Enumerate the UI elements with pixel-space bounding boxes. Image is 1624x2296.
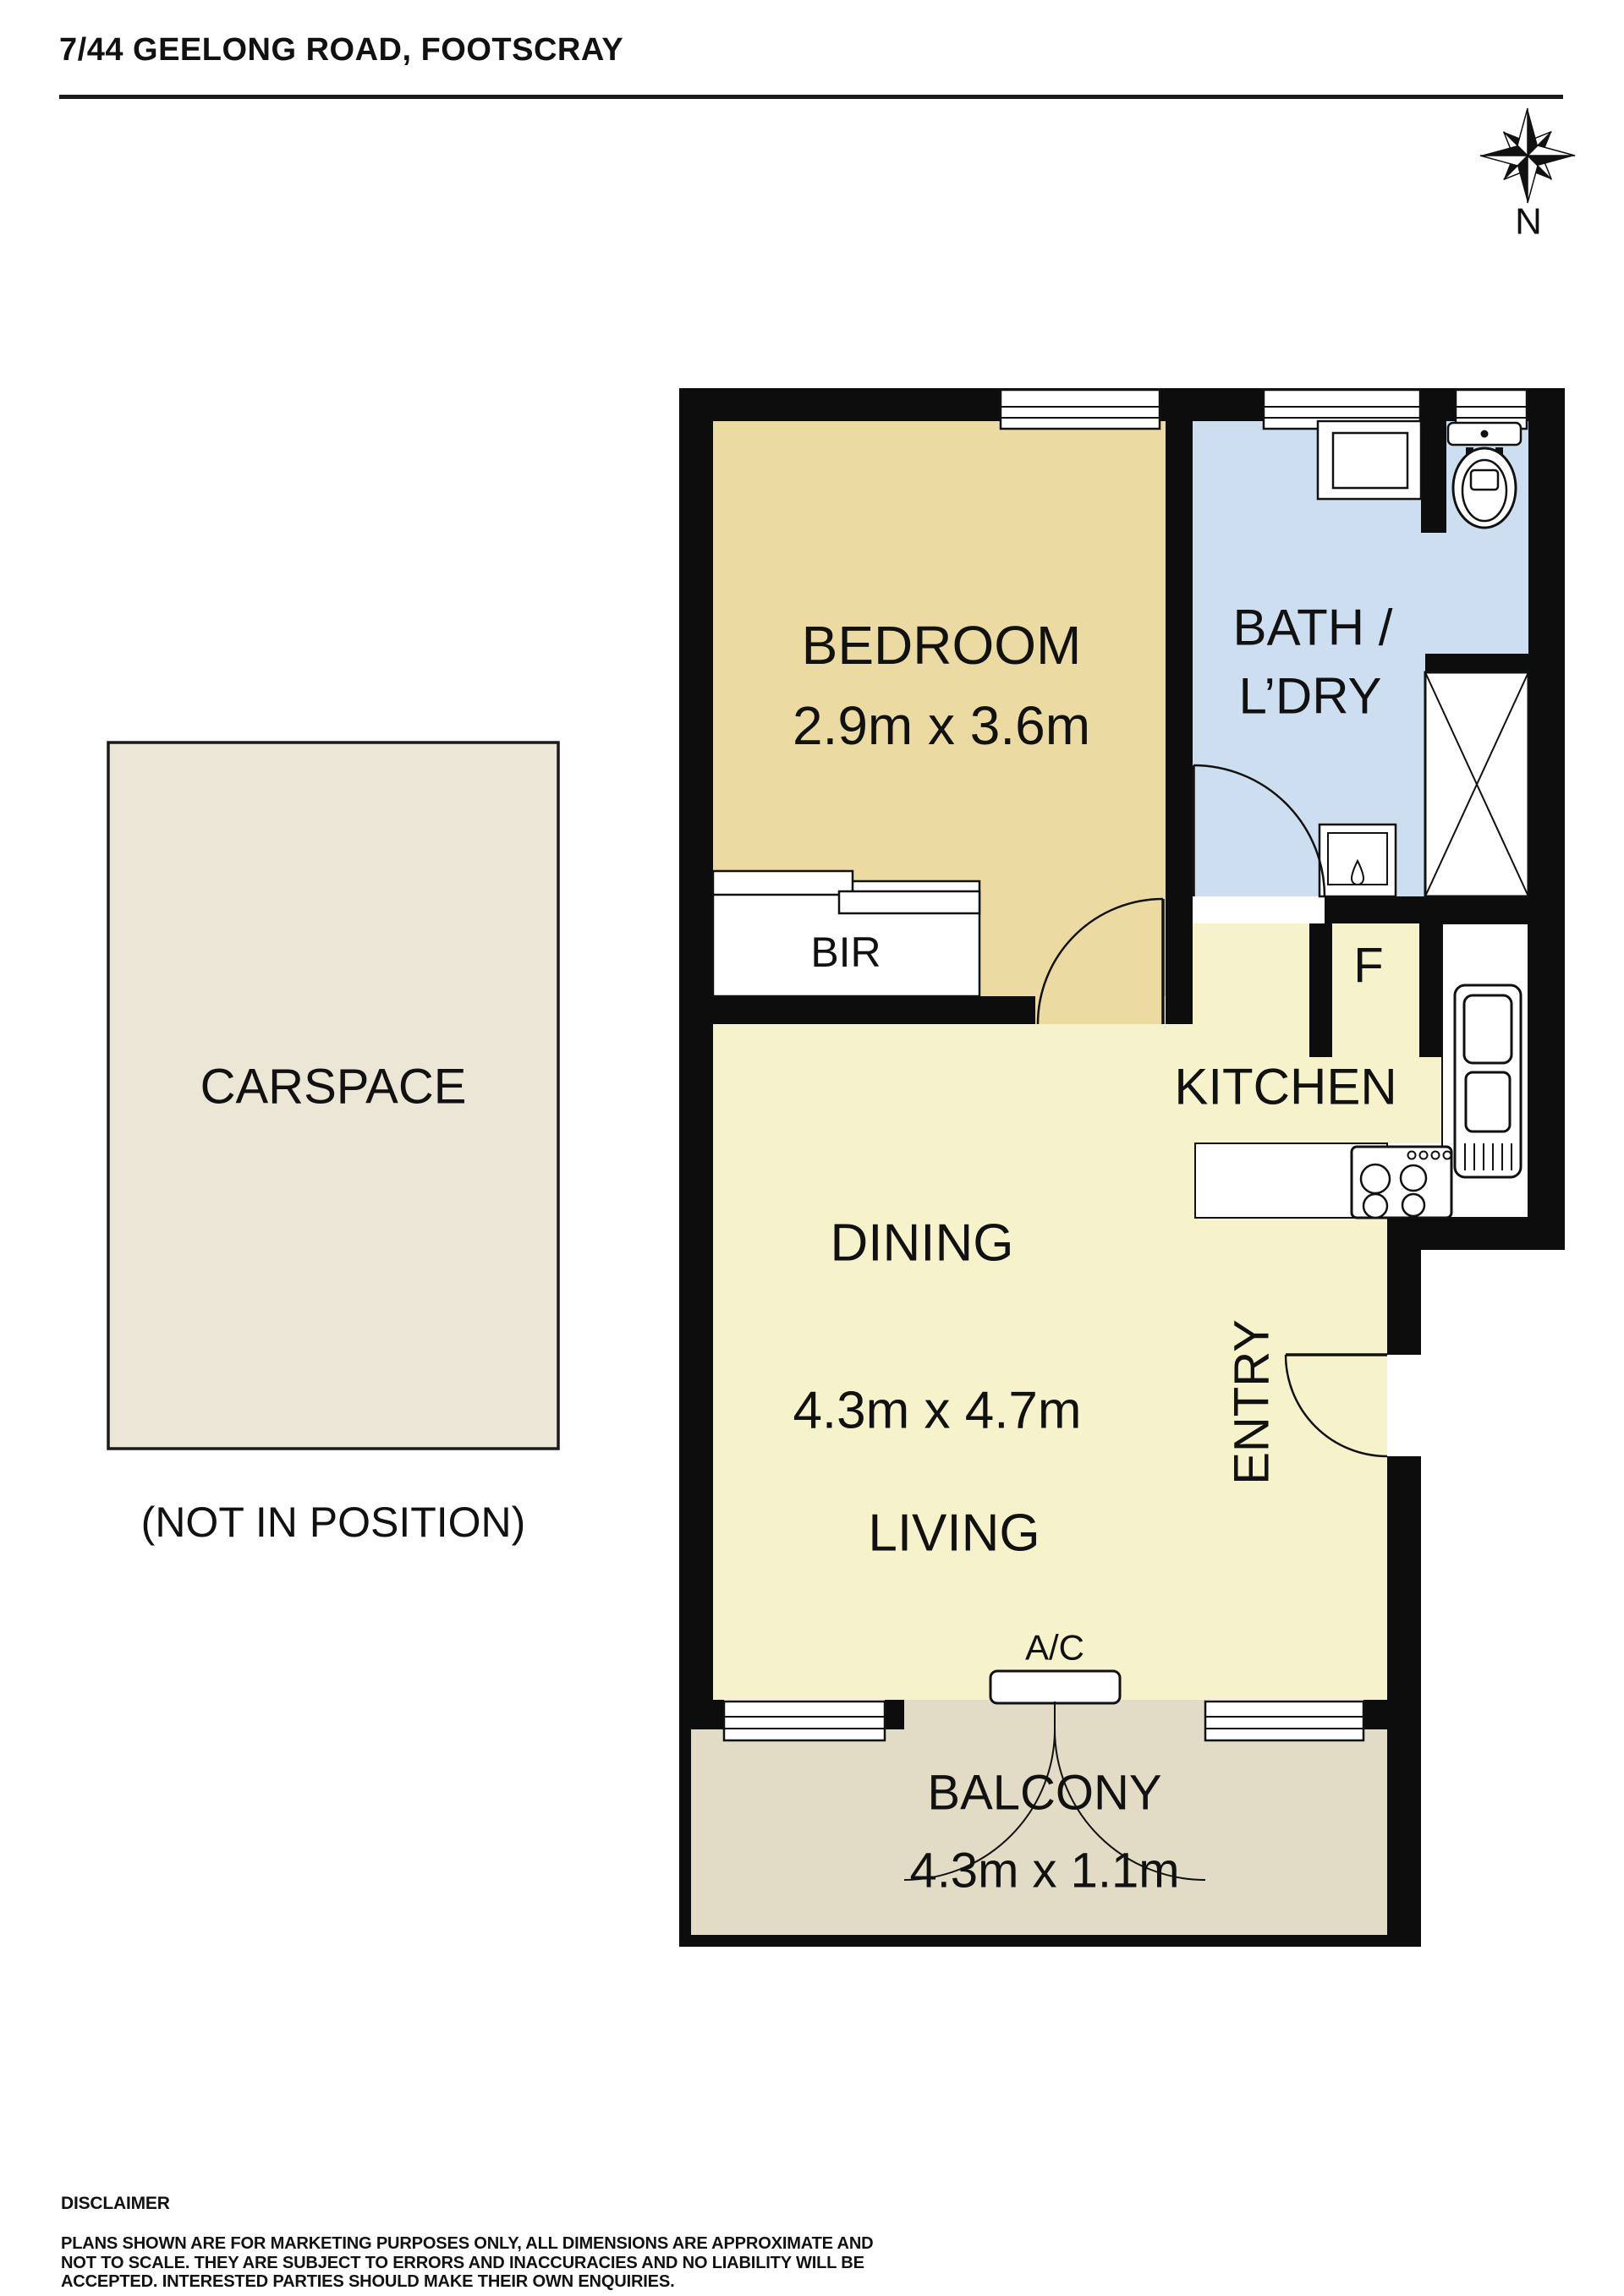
ac-unit [990,1671,1120,1703]
ac-label: A/C [1025,1628,1084,1668]
wall-segment [679,1729,691,1947]
north-label: N [1515,201,1542,243]
entry-label: ENTRY [1225,1319,1280,1485]
balcony-dims: 4.3m x 1.1m [909,1844,1179,1899]
balcony-floor [691,1729,1387,1935]
wall-segment [1419,923,1442,1057]
living-dining-dims: 4.3m x 4.7m [793,1382,1081,1440]
toilet-symbol [1448,423,1521,528]
wall-segment [679,1935,1421,1947]
bedroom-window [1001,390,1160,429]
wall-segment [1387,1456,1421,1947]
wall-segment [1387,1218,1565,1250]
kitchen-sink-symbol [1455,985,1521,1177]
wall-segment [1421,421,1446,533]
wall-segment [1528,388,1565,1250]
carspace-note: (NOT IN POSITION) [141,1499,526,1546]
floorplan-drawing: N CARSPACE (NOT IN POSITION) [0,0,1624,2296]
wall-segment [1309,923,1332,1057]
wall-segment [679,1700,724,1729]
disclaimer-heading: DISCLAIMER [61,2194,890,2214]
fridge-label: F [1353,939,1383,994]
wall-segment [885,1700,904,1729]
disclaimer-block: DISCLAIMER PLANS SHOWN ARE FOR MARKETING… [61,2194,890,2292]
kitchen-label: KITCHEN [1174,1059,1396,1115]
living-kitchen-floor [713,923,1442,1700]
bir-label: BIR [810,929,881,976]
wall-segment [1425,654,1528,672]
bir-sliding-door [839,891,979,913]
wall-segment [713,996,1035,1024]
wall-segment [1363,1700,1387,1729]
compass-rose-icon [1480,108,1575,203]
living-window [724,1701,885,1740]
wall-segment [1166,421,1193,1024]
laundry-trough-symbol [1319,825,1396,896]
bedroom-dims: 2.9m x 3.6m [793,695,1090,756]
shower-cabinet-symbol [1425,672,1528,896]
bir-sliding-door [713,871,853,895]
vanity-basin-symbol [1318,421,1421,499]
living-label: LIVING [868,1504,1040,1563]
wall-segment [1387,1250,1421,1355]
bedroom-doorway-floor [1035,996,1163,1024]
wall-segment [1325,896,1528,923]
entry-window [1205,1701,1363,1740]
carspace-label: CARSPACE [200,1060,467,1115]
floorplan-page: 7/44 GEELONG ROAD, FOOTSCRAY N C [0,0,1624,2296]
bath-label-line2: L’DRY [1239,668,1382,725]
bath-label-line1: BATH / [1233,600,1393,656]
dining-label: DINING [831,1214,1014,1273]
stove-cooktop-symbol [1352,1147,1451,1218]
bedroom-label: BEDROOM [802,615,1082,676]
disclaimer-line: ACCEPTED. INTERESTED PARTIES SHOULD MAKE… [61,2272,873,2292]
disclaimer-line: NOT TO SCALE. THEY ARE SUBJECT TO ERRORS… [61,2254,873,2273]
balcony-label: BALCONY [927,1766,1161,1821]
disclaimer-line: PLANS SHOWN ARE FOR MARKETING PURPOSES O… [61,2234,873,2254]
wall-segment [679,388,713,1729]
